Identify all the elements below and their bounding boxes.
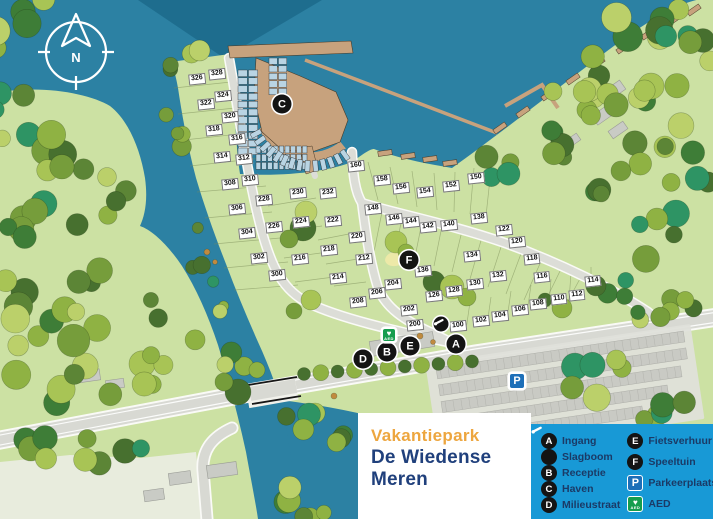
park-map: N 10010210410610811011211411611812012212…	[0, 0, 713, 519]
marker-letter-icon-a: A	[541, 433, 557, 449]
marker-letter-icon-d: D	[541, 497, 557, 513]
barrier-icon	[541, 449, 557, 465]
legend-item-parkeerplaats: PParkeerplaats	[627, 475, 713, 491]
parking-icon: P	[627, 475, 643, 491]
legend-label: AED	[648, 498, 670, 510]
legend-column-1: AIngangSlagboomBReceptieCHavenDMilieustr…	[541, 433, 620, 512]
aed-icon: ♥AED	[627, 496, 643, 512]
legend-label: Speeltuin	[648, 456, 695, 468]
legend-label: Ingang	[562, 435, 596, 447]
legend-label: Haven	[562, 483, 594, 495]
legend-item-speeltuin: FSpeeltuin	[627, 454, 713, 470]
legend-label: Fietsverhuur	[648, 435, 712, 447]
marker-letter-icon-e: E	[627, 433, 643, 449]
legend-label: Parkeerplaats	[648, 477, 713, 489]
legend-label: Milieustraat	[562, 499, 620, 511]
legend-item-receptie: BReceptie	[541, 465, 620, 481]
legend-item-milieustraat: DMilieustraat	[541, 497, 620, 513]
legend-item-fietsverhuur: EFietsverhuur	[627, 433, 713, 449]
marker-letter-icon-c: C	[541, 481, 557, 497]
legend-label: Receptie	[562, 467, 606, 479]
legend-item-aed: ♥AEDAED	[627, 496, 713, 512]
title-panel: Vakantiepark De Wiedense Meren	[358, 413, 531, 519]
park-title-line2: De Wiedense Meren	[371, 447, 531, 491]
marker-letter-icon-f: F	[627, 454, 643, 470]
legend-item-slagboom: Slagboom	[541, 449, 620, 465]
legend-item-haven: CHaven	[541, 481, 620, 497]
legend-item-ingang: AIngang	[541, 433, 620, 449]
legend-panel: AIngangSlagboomBReceptieCHavenDMilieustr…	[531, 424, 713, 519]
legend-column-2: EFietsverhuurFSpeeltuinPParkeerplaats♥AE…	[627, 433, 713, 512]
park-title-line1: Vakantiepark	[371, 426, 531, 446]
compass-north-label: N	[71, 50, 80, 65]
marker-letter-icon-b: B	[541, 465, 557, 481]
legend-label: Slagboom	[562, 451, 613, 463]
